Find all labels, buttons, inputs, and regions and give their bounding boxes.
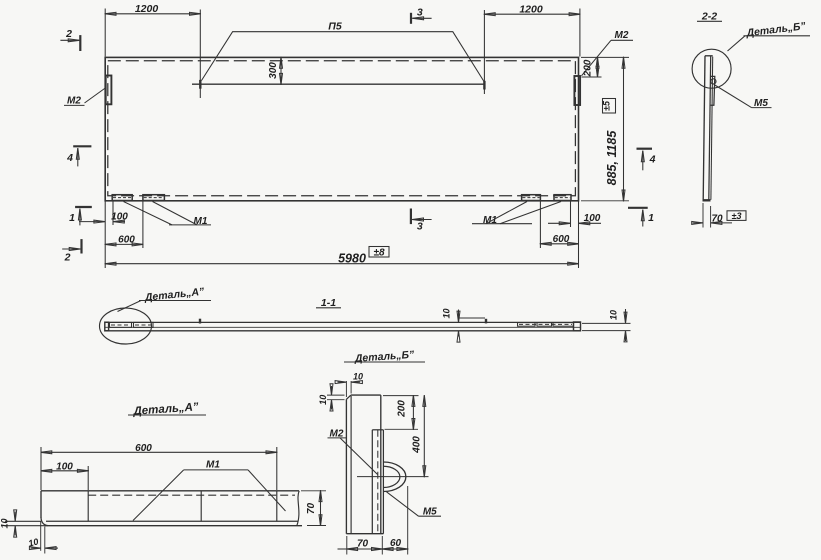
svg-text:2-2: 2-2 [701,10,717,22]
svg-text:10: 10 [353,372,363,382]
svg-text:М5: М5 [423,506,437,517]
svg-text:10: 10 [442,308,452,318]
svg-text:600: 600 [118,235,135,246]
svg-text:М2: М2 [615,30,629,41]
svg-text:М1: М1 [483,215,497,226]
svg-text:100: 100 [584,213,601,224]
svg-text:±5: ±5 [602,100,612,111]
svg-text:10: 10 [318,395,328,405]
svg-text:70: 70 [711,213,723,224]
svg-text:4: 4 [649,154,656,166]
svg-text:4: 4 [66,152,73,164]
svg-text:70: 70 [306,503,317,515]
svg-text:М1: М1 [206,460,220,471]
svg-text:100: 100 [111,211,128,222]
svg-text:П5: П5 [328,21,342,33]
svg-text:5980: 5980 [338,251,366,265]
svg-text:±8: ±8 [373,247,384,258]
svg-text:2: 2 [65,28,72,40]
svg-text:3: 3 [417,221,423,233]
svg-text:Деталь„А”: Деталь„А” [143,286,205,304]
svg-text:10: 10 [0,518,10,528]
svg-text:100: 100 [56,461,73,472]
svg-text:70: 70 [357,539,369,550]
svg-text:10: 10 [609,310,619,320]
svg-text:1: 1 [69,212,75,224]
svg-text:200: 200 [397,400,408,418]
svg-text:1200: 1200 [135,3,159,15]
svg-text:600: 600 [553,234,570,245]
svg-text:±3: ±3 [732,211,742,221]
svg-text:Деталь„Б”: Деталь„Б” [745,20,807,39]
svg-text:1200: 1200 [519,3,543,15]
svg-text:1: 1 [648,212,654,224]
svg-text:400: 400 [412,436,423,454]
svg-text:М2: М2 [67,96,81,107]
svg-text:2: 2 [64,251,71,263]
svg-text:885, 1185: 885, 1185 [605,130,619,186]
svg-text:10: 10 [27,536,39,548]
svg-text:600: 600 [135,443,152,454]
svg-text:60: 60 [390,538,402,549]
svg-text:200: 200 [583,59,594,77]
svg-text:3: 3 [417,6,423,18]
svg-text:1-1: 1-1 [321,297,336,309]
svg-text:300: 300 [268,62,279,79]
